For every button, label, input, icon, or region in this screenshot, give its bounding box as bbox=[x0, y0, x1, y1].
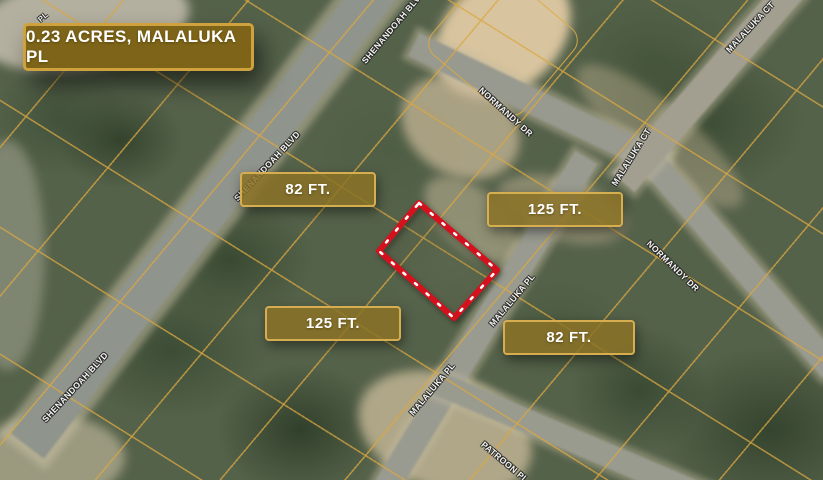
listing-map: SHENANDOAH BLVD SHENANDOAH BLVD SHENANDO… bbox=[0, 0, 823, 480]
dimension-label-bottom-right: 82 FT. bbox=[503, 320, 635, 355]
dimension-label-right: 125 FT. bbox=[487, 192, 623, 227]
dimension-label-bottom-left: 125 FT. bbox=[265, 306, 401, 341]
dimension-label-top: 82 FT. bbox=[240, 172, 376, 207]
listing-title-badge: 0.23 ACRES, MALALUKA PL bbox=[23, 23, 254, 71]
